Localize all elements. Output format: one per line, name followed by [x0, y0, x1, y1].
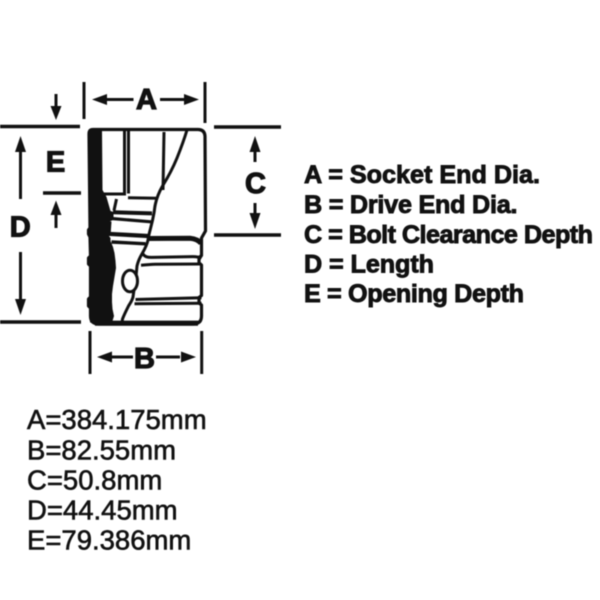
svg-text:C = Bolt Clearance Depth: C = Bolt Clearance Depth [304, 221, 593, 249]
svg-text:A = Socket End Dia.: A = Socket End Dia. [304, 161, 540, 189]
svg-text:A=384.175mm: A=384.175mm [27, 404, 207, 435]
svg-text:C=50.8mm: C=50.8mm [27, 465, 162, 496]
svg-text:B: B [134, 343, 155, 375]
svg-text:D = Length: D = Length [304, 251, 434, 279]
svg-text:B = Drive End Dia.: B = Drive End Dia. [304, 191, 518, 219]
svg-text:E=79.386mm: E=79.386mm [27, 525, 191, 556]
svg-text:E = Opening Depth: E = Opening Depth [304, 280, 524, 308]
svg-text:A: A [136, 84, 157, 116]
svg-text:E: E [46, 147, 65, 179]
svg-text:B=82.55mm: B=82.55mm [27, 435, 176, 466]
svg-text:C: C [245, 168, 266, 200]
svg-text:D=44.45mm: D=44.45mm [27, 495, 178, 526]
svg-text:D: D [10, 212, 31, 244]
